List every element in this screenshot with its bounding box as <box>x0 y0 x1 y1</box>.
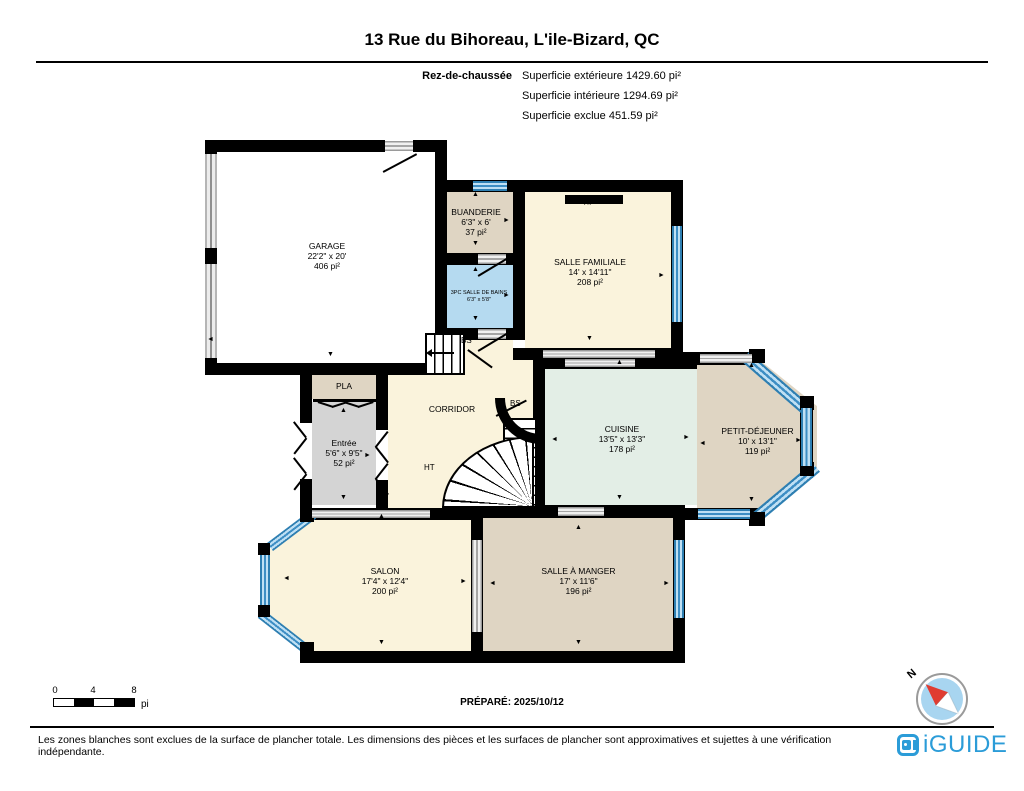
footer-divider <box>30 726 994 728</box>
wall <box>533 505 685 518</box>
room-name: SALLE À MANGER <box>506 566 651 576</box>
dimension-arrow: ◄ <box>283 575 290 582</box>
room-name: PETIT-DÉJEUNER <box>695 426 820 436</box>
window <box>473 181 507 191</box>
room-area: 178 pi² <box>570 444 674 454</box>
room-label-salon: SALON 17'4" x 12'4" 200 pi² <box>325 566 445 596</box>
dimension-arrow: ▼ <box>327 351 334 358</box>
dimension-arrow: ◄ <box>518 272 525 279</box>
wall-opening <box>472 540 482 632</box>
garage-window <box>205 264 217 358</box>
dimension-arrow: ► <box>663 580 670 587</box>
dimension-arrow: ▲ <box>378 513 385 520</box>
room-label-entree: Entrée 5'6" x 9'5" 52 pi² <box>302 438 386 468</box>
room-name: GARAGE <box>267 241 387 251</box>
room-area: 37 pi² <box>426 227 526 237</box>
room-dims: 14' x 14'11" <box>528 267 652 277</box>
scale-tick: 4 <box>88 685 98 696</box>
dimension-arrow: ► <box>503 292 510 299</box>
window <box>698 509 750 519</box>
stairs-up-label: HT <box>424 463 435 472</box>
dimension-arrow: ▲ <box>340 407 347 414</box>
dimension-arrow: ▲ <box>748 362 755 369</box>
iguide-logo: iGUIDE <box>897 731 1007 759</box>
icon-dot <box>904 743 907 746</box>
room-area: 119 pi² <box>695 446 820 456</box>
room-name: BUANDERIE <box>426 207 526 217</box>
dimension-arrow: ▲ <box>472 266 479 273</box>
fireplace <box>565 195 623 204</box>
window <box>260 553 270 611</box>
dimension-arrow: ▼ <box>472 315 479 322</box>
wall <box>205 363 455 375</box>
room-dims: 17' x 11'6" <box>506 576 651 586</box>
wall <box>513 180 525 340</box>
stair-arrow <box>430 352 454 354</box>
room-name: SALLE FAMILIALE <box>528 257 652 267</box>
north-label: N <box>905 667 919 681</box>
room-area: 196 pi² <box>506 586 651 596</box>
dimension-arrow: ► <box>683 434 690 441</box>
fireplace-label: F/P <box>584 200 593 209</box>
wall <box>300 642 314 654</box>
dimension-arrow: ◄ <box>699 440 706 447</box>
door-swing <box>383 153 417 172</box>
area-interior: Superficie intérieure 1294.69 pi² <box>522 90 681 102</box>
dimension-arrow: ▼ <box>340 494 347 501</box>
door-opening <box>558 507 604 516</box>
scale-tick: 0 <box>50 685 60 696</box>
dimension-arrow: ▼ <box>378 639 385 646</box>
room-label-cuisine: CUISINE 13'5" x 13'3" 178 pi² <box>570 424 674 454</box>
wall-opening <box>312 510 430 518</box>
iguide-icon <box>897 734 919 756</box>
area-excluded: Superficie exclue 451.59 pi² <box>522 110 681 122</box>
area-exterior: Superficie extérieure 1429.60 pi² <box>522 70 681 82</box>
wall <box>300 651 685 663</box>
room-area: 200 pi² <box>325 586 445 596</box>
door-opening <box>385 141 413 151</box>
dimension-arrow: ▼ <box>586 335 593 342</box>
stairs-down-label: BS <box>461 336 472 345</box>
icon-bar <box>913 740 916 750</box>
floor-name: Rez-de-chaussée <box>330 70 512 82</box>
dimension-arrow: ▲ <box>327 142 334 149</box>
dimension-arrow: ◄ <box>438 292 445 299</box>
compass: N <box>916 673 968 725</box>
dimension-arrow: ► <box>795 437 802 444</box>
floor-corridor <box>513 360 533 385</box>
room-area: 208 pi² <box>528 277 652 287</box>
garage-window <box>205 154 217 248</box>
floor-plan-page: { "header": { "title": "13 Rue du Bihore… <box>0 0 1024 791</box>
dimension-arrow: ▲ <box>472 191 479 198</box>
dimension-arrow: ► <box>364 452 371 459</box>
room-label-corridor: CORRIDOR <box>398 404 506 414</box>
room-dims: 22'2" x 20' <box>267 251 387 261</box>
wall-opening <box>700 354 752 363</box>
brand-name: iGUIDE <box>923 731 1007 759</box>
dimension-arrow: ► <box>658 272 665 279</box>
dimension-arrow: ▼ <box>472 240 479 247</box>
dimension-arrow: ◄ <box>551 436 558 443</box>
dimension-arrow: ◄ <box>207 336 214 343</box>
window <box>674 540 684 618</box>
room-name: CORRIDOR <box>398 404 506 414</box>
room-area: 406 pi² <box>267 261 387 271</box>
area-summary: Superficie extérieure 1429.60 pi² Superf… <box>522 70 681 130</box>
room-label-salle-familiale: SALLE FAMILIALE 14' x 14'11" 208 pi² <box>528 257 652 287</box>
wall <box>205 140 385 152</box>
prepared-date: PRÉPARÉ: 2025/10/12 <box>0 697 1024 708</box>
room-dims: 17'4" x 12'4" <box>325 576 445 586</box>
room-name: Entrée <box>302 438 386 448</box>
stairs-down-label: BS <box>510 399 521 408</box>
room-dims: 5'6" x 9'5" <box>302 448 386 458</box>
wall <box>749 512 765 526</box>
wall-opening <box>565 359 635 367</box>
wall <box>258 543 270 555</box>
dimension-arrow: ▲ <box>575 524 582 531</box>
wall <box>258 605 270 617</box>
room-label-pla: PLA <box>314 381 374 391</box>
stair-arrowhead <box>426 349 432 357</box>
dimension-arrow: ◄ <box>438 217 445 224</box>
room-dims: 13'5" x 13'3" <box>570 434 674 444</box>
room-name: PLA <box>314 381 374 391</box>
room-name: CUISINE <box>570 424 674 434</box>
room-label-garage: GARAGE 22'2" x 20' 406 pi² <box>267 241 387 271</box>
dimension-arrow: ► <box>503 217 510 224</box>
header-divider <box>36 61 988 63</box>
room-area: 52 pi² <box>302 458 386 468</box>
page-title: 13 Rue du Bihoreau, L'ile-Bizard, QC <box>0 30 1024 50</box>
dimension-arrow: ▼ <box>748 496 755 503</box>
wall <box>513 180 683 192</box>
dimension-arrow: ▲ <box>616 359 623 366</box>
wall-opening <box>543 350 655 358</box>
window <box>672 226 682 322</box>
scale-tick: 8 <box>129 685 139 696</box>
dimension-arrow: ▼ <box>575 639 582 646</box>
dimension-arrow: ◄ <box>489 580 496 587</box>
room-name: SALON <box>325 566 445 576</box>
disclaimer: Les zones blanches sont exclues de la su… <box>38 734 878 758</box>
dimension-arrow: ► <box>460 578 467 585</box>
room-label-salle-a-manger: SALLE À MANGER 17' x 11'6" 196 pi² <box>506 566 651 596</box>
dimension-arrow: ▼ <box>616 494 623 501</box>
